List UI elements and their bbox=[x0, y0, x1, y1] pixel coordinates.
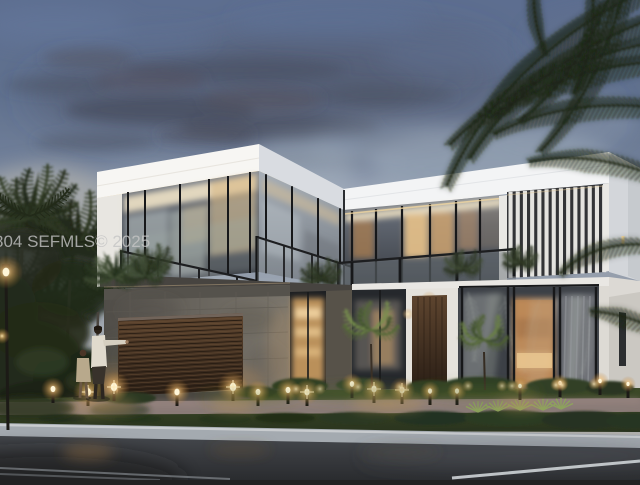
svg-text:804 SEFMLS© 2025: 804 SEFMLS© 2025 bbox=[0, 232, 150, 251]
